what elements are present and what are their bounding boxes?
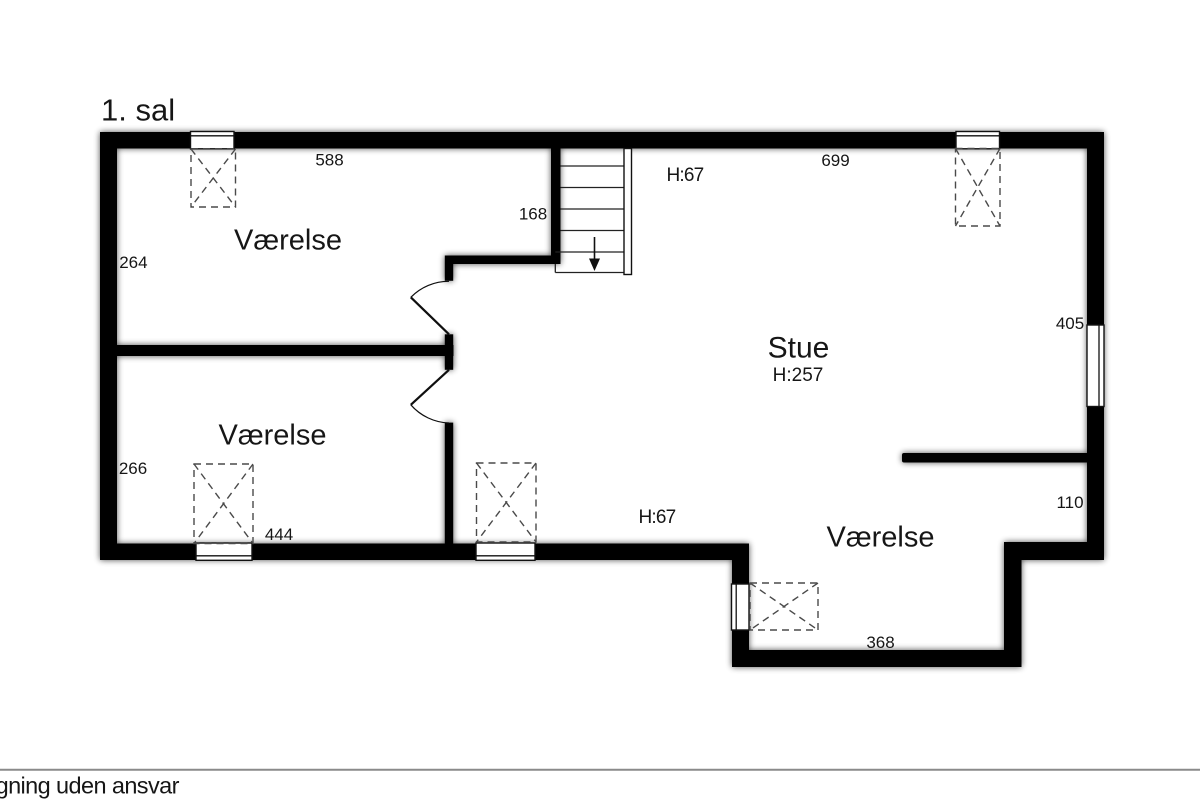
svg-text:168: 168 xyxy=(519,205,547,224)
svg-text:Værelse: Værelse xyxy=(219,420,327,452)
svg-text:1. sal: 1. sal xyxy=(101,93,175,128)
svg-text:Tegning uden ansvar: Tegning uden ansvar xyxy=(0,773,180,799)
svg-text:588: 588 xyxy=(315,151,343,170)
svg-text:264: 264 xyxy=(119,253,147,272)
svg-text:110: 110 xyxy=(1056,493,1083,512)
svg-text:H:67: H:67 xyxy=(667,165,704,186)
svg-text:368: 368 xyxy=(866,633,894,652)
svg-text:405: 405 xyxy=(1056,314,1084,333)
svg-text:Værelse: Værelse xyxy=(827,522,935,554)
svg-text:Stue: Stue xyxy=(768,332,830,365)
svg-text:Værelse: Værelse xyxy=(234,225,342,257)
svg-text:H:257: H:257 xyxy=(773,365,824,386)
svg-text:H:67: H:67 xyxy=(639,507,676,528)
svg-text:699: 699 xyxy=(821,151,849,170)
svg-text:266: 266 xyxy=(119,459,147,478)
svg-text:444: 444 xyxy=(265,525,293,544)
